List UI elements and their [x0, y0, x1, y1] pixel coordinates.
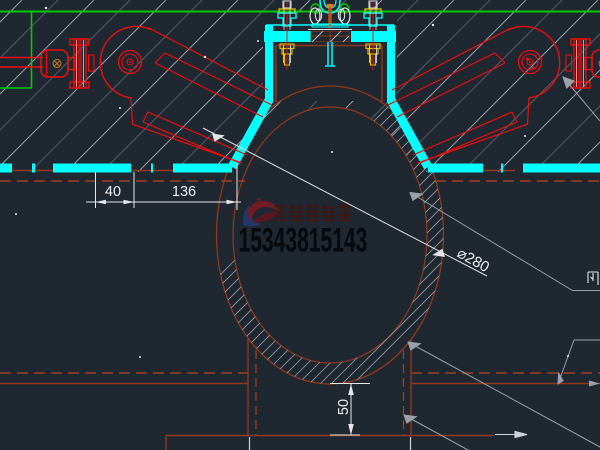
svg-text:15343815143: 15343815143 [239, 220, 368, 258]
svg-text:40: 40 [105, 184, 121, 200]
svg-text:50: 50 [336, 399, 352, 415]
svg-text:136: 136 [172, 184, 196, 200]
